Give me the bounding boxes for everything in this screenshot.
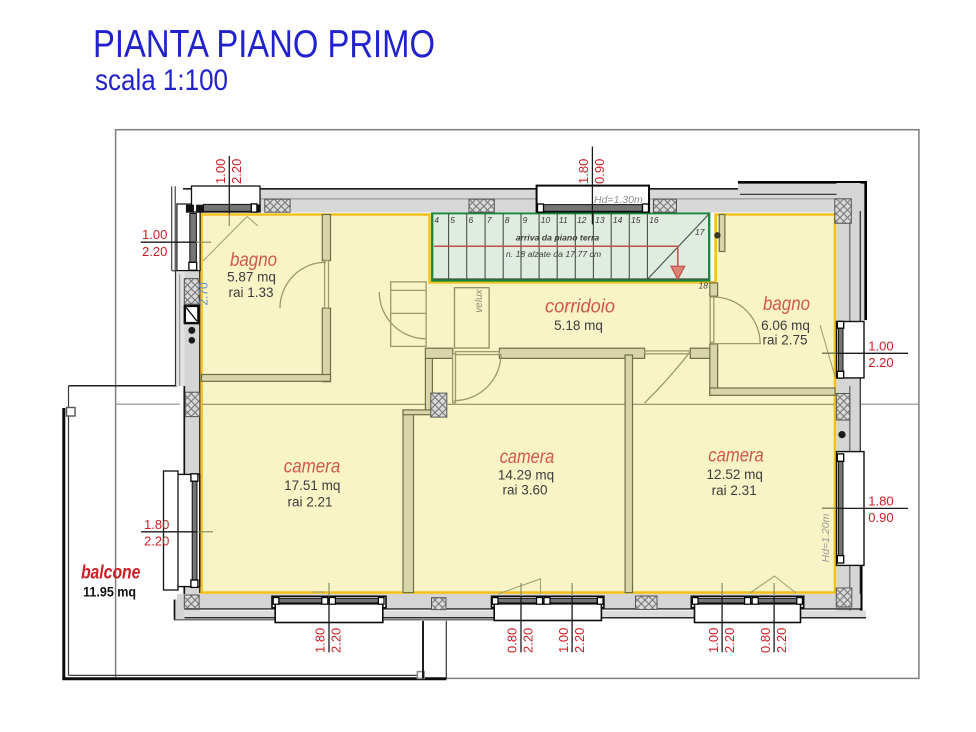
svg-text:Hd=1.30m: Hd=1.30m (594, 194, 643, 206)
svg-text:corridoio: corridoio (545, 297, 615, 318)
svg-text:9: 9 (523, 215, 528, 225)
svg-text:1.00: 1.00 (213, 159, 228, 184)
svg-text:5.18 mq: 5.18 mq (554, 318, 603, 333)
svg-text:12: 12 (577, 215, 587, 225)
svg-text:rai 1.33: rai 1.33 (228, 285, 273, 300)
svg-text:1.00: 1.00 (556, 628, 571, 653)
svg-text:2.20: 2.20 (144, 533, 169, 548)
svg-text:13: 13 (595, 215, 605, 225)
svg-text:16: 16 (649, 215, 659, 225)
svg-text:n. 18 alzate da 17.77 cm: n. 18 alzate da 17.77 cm (506, 249, 601, 259)
svg-text:2.20: 2.20 (722, 628, 737, 653)
svg-text:2.70: 2.70 (196, 282, 210, 306)
svg-text:rai 2.21: rai 2.21 (287, 495, 332, 510)
svg-text:1.80: 1.80 (313, 628, 328, 653)
svg-text:14: 14 (613, 215, 623, 225)
svg-text:2.20: 2.20 (572, 628, 587, 653)
svg-text:1.80: 1.80 (576, 159, 591, 184)
svg-text:1.80: 1.80 (868, 493, 893, 508)
svg-text:5.87 mq: 5.87 mq (227, 270, 276, 285)
svg-text:0.90: 0.90 (868, 510, 893, 525)
svg-text:2.20: 2.20 (868, 355, 893, 370)
svg-text:4: 4 (434, 215, 439, 225)
svg-text:rai 3.60: rai 3.60 (502, 483, 547, 498)
svg-text:1.00: 1.00 (142, 227, 167, 242)
svg-text:arriva da piano terra: arriva da piano terra (516, 233, 600, 243)
svg-text:14.29 mq: 14.29 mq (498, 468, 554, 483)
svg-text:11.95 mq: 11.95 mq (83, 585, 136, 600)
svg-text:2.20: 2.20 (229, 159, 244, 184)
svg-text:camera: camera (284, 457, 341, 478)
svg-text:1.80: 1.80 (144, 517, 169, 532)
svg-text:2.20: 2.20 (521, 628, 536, 653)
svg-text:2.20: 2.20 (774, 628, 789, 653)
svg-text:scala 1:100: scala 1:100 (95, 64, 228, 97)
svg-text:2.20: 2.20 (329, 628, 344, 653)
svg-text:2.20: 2.20 (142, 244, 167, 259)
svg-text:12.52 mq: 12.52 mq (707, 467, 763, 482)
svg-text:bagno: bagno (763, 294, 810, 315)
svg-text:18: 18 (699, 281, 709, 291)
svg-text:10: 10 (541, 215, 551, 225)
svg-text:7: 7 (487, 215, 492, 225)
svg-text:camera: camera (708, 446, 764, 467)
svg-text:rai 2.75: rai 2.75 (762, 333, 807, 348)
svg-text:PIANTA PIANO PRIMO: PIANTA PIANO PRIMO (93, 23, 435, 66)
svg-text:1.00: 1.00 (868, 338, 893, 353)
svg-text:0.90: 0.90 (592, 159, 607, 184)
svg-text:15: 15 (631, 215, 641, 225)
svg-text:camera: camera (500, 447, 555, 468)
svg-text:17: 17 (695, 227, 705, 237)
svg-text:6: 6 (469, 215, 474, 225)
svg-text:balcone: balcone (81, 563, 141, 584)
svg-text:6.06 mq: 6.06 mq (761, 318, 810, 333)
svg-text:5: 5 (450, 215, 455, 225)
svg-text:0.80: 0.80 (758, 628, 773, 653)
svg-text:Hd=1.20m: Hd=1.20m (820, 513, 832, 562)
svg-text:8: 8 (505, 215, 510, 225)
svg-text:1.00: 1.00 (706, 628, 721, 653)
svg-text:bagno: bagno (230, 250, 277, 271)
svg-text:0.80: 0.80 (505, 628, 520, 653)
svg-text:11: 11 (559, 215, 568, 225)
svg-text:rai 2.31: rai 2.31 (712, 483, 757, 498)
svg-text:17.51 mq: 17.51 mq (284, 478, 340, 493)
svg-text:velux: velux (474, 288, 485, 312)
